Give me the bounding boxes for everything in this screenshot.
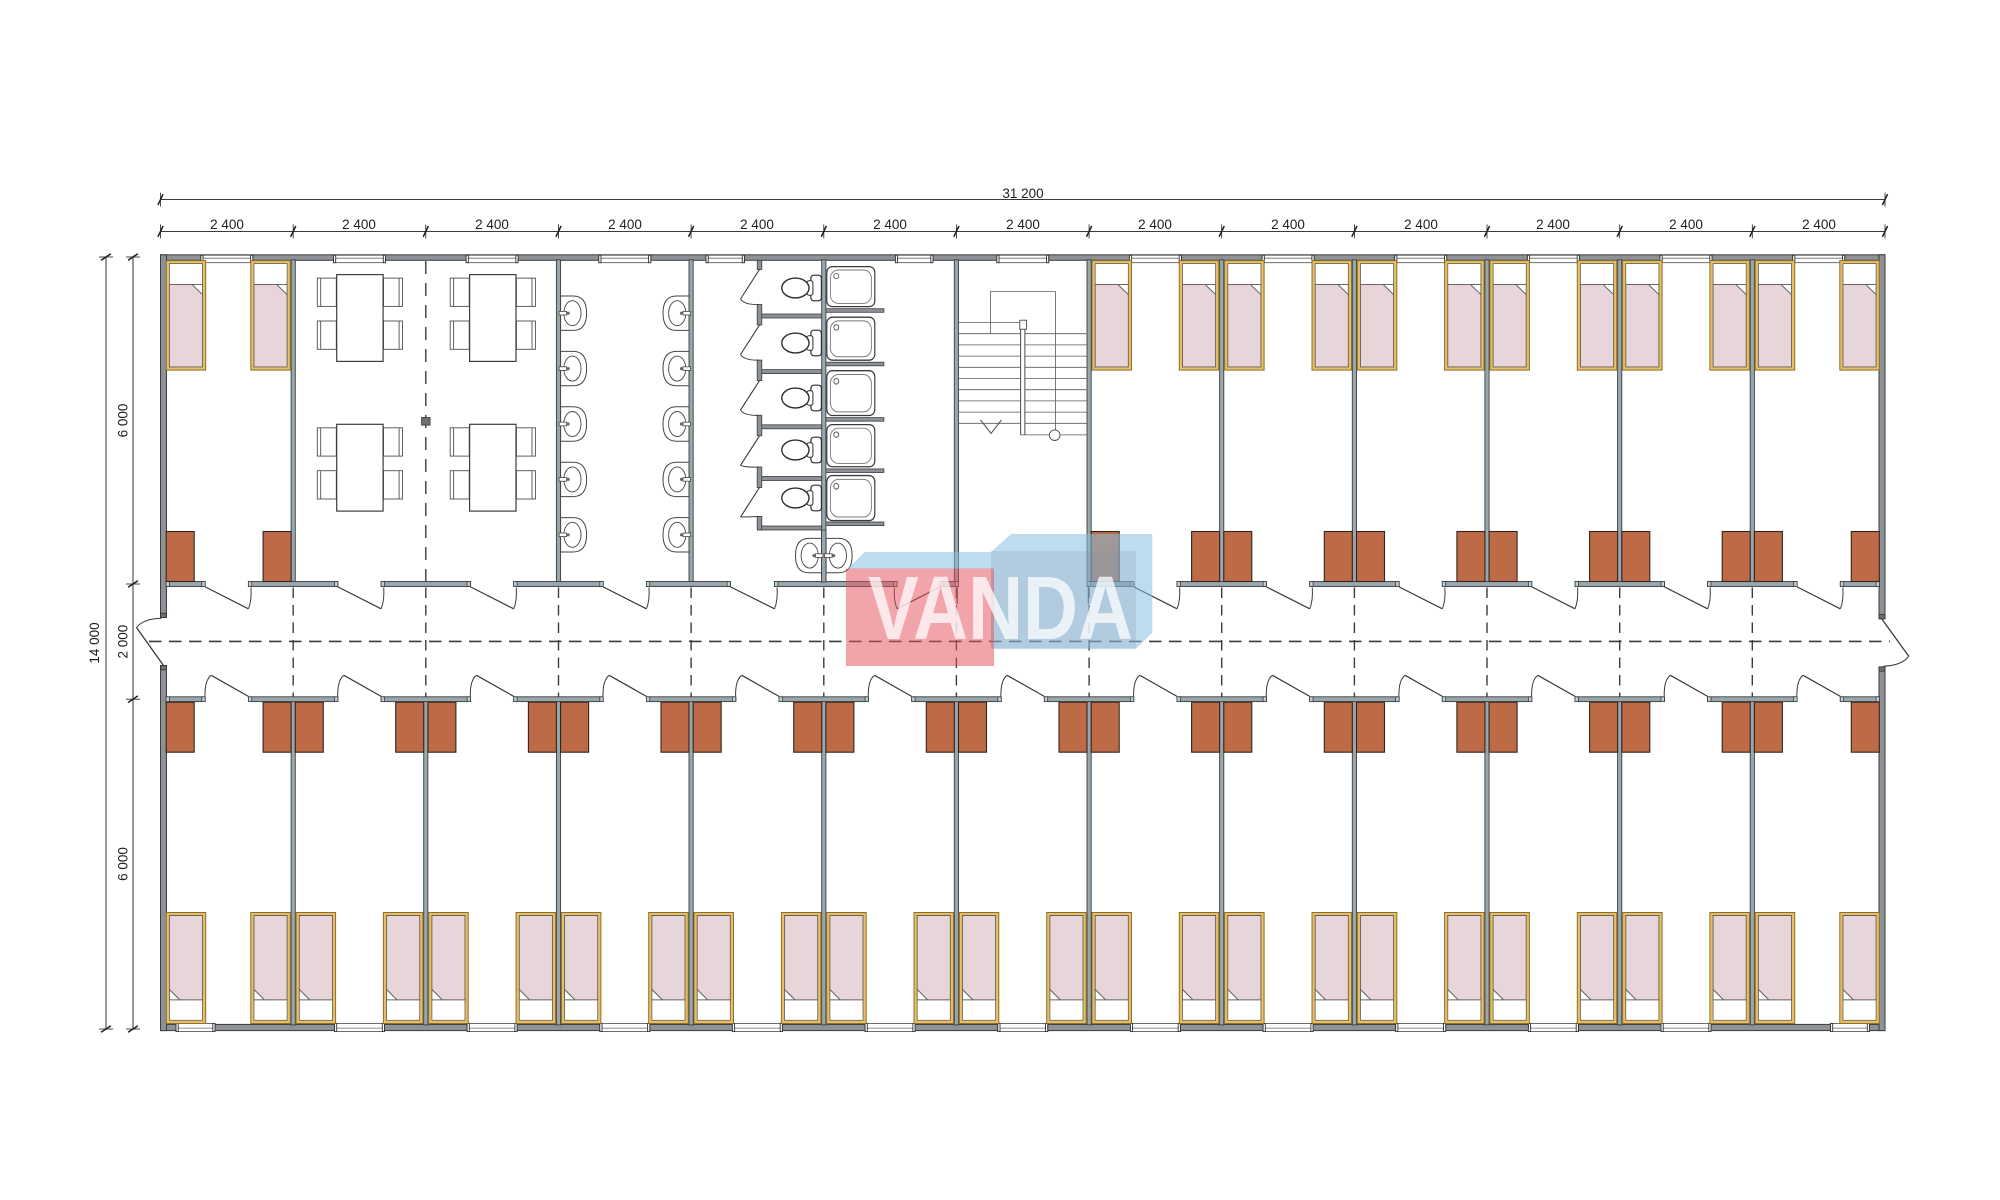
svg-text:2 400: 2 400 <box>1802 217 1836 232</box>
svg-text:2 400: 2 400 <box>342 217 376 232</box>
svg-text:31 200: 31 200 <box>1002 186 1043 201</box>
svg-text:2 400: 2 400 <box>210 217 244 232</box>
svg-text:2 400: 2 400 <box>1404 217 1438 232</box>
svg-text:2 400: 2 400 <box>1669 217 1703 232</box>
svg-text:2 400: 2 400 <box>475 217 509 232</box>
svg-text:2 400: 2 400 <box>1271 217 1305 232</box>
svg-text:14 000: 14 000 <box>87 622 102 663</box>
svg-text:2 400: 2 400 <box>873 217 907 232</box>
svg-text:2 400: 2 400 <box>1006 217 1040 232</box>
svg-text:2 400: 2 400 <box>1536 217 1570 232</box>
svg-text:2 400: 2 400 <box>608 217 642 232</box>
svg-text:2 400: 2 400 <box>740 217 774 232</box>
svg-text:6 000: 6 000 <box>116 847 131 881</box>
svg-text:6 000: 6 000 <box>116 404 131 438</box>
svg-text:VANDA: VANDA <box>868 559 1133 659</box>
svg-text:2 400: 2 400 <box>1138 217 1172 232</box>
svg-text:2 000: 2 000 <box>116 625 131 659</box>
